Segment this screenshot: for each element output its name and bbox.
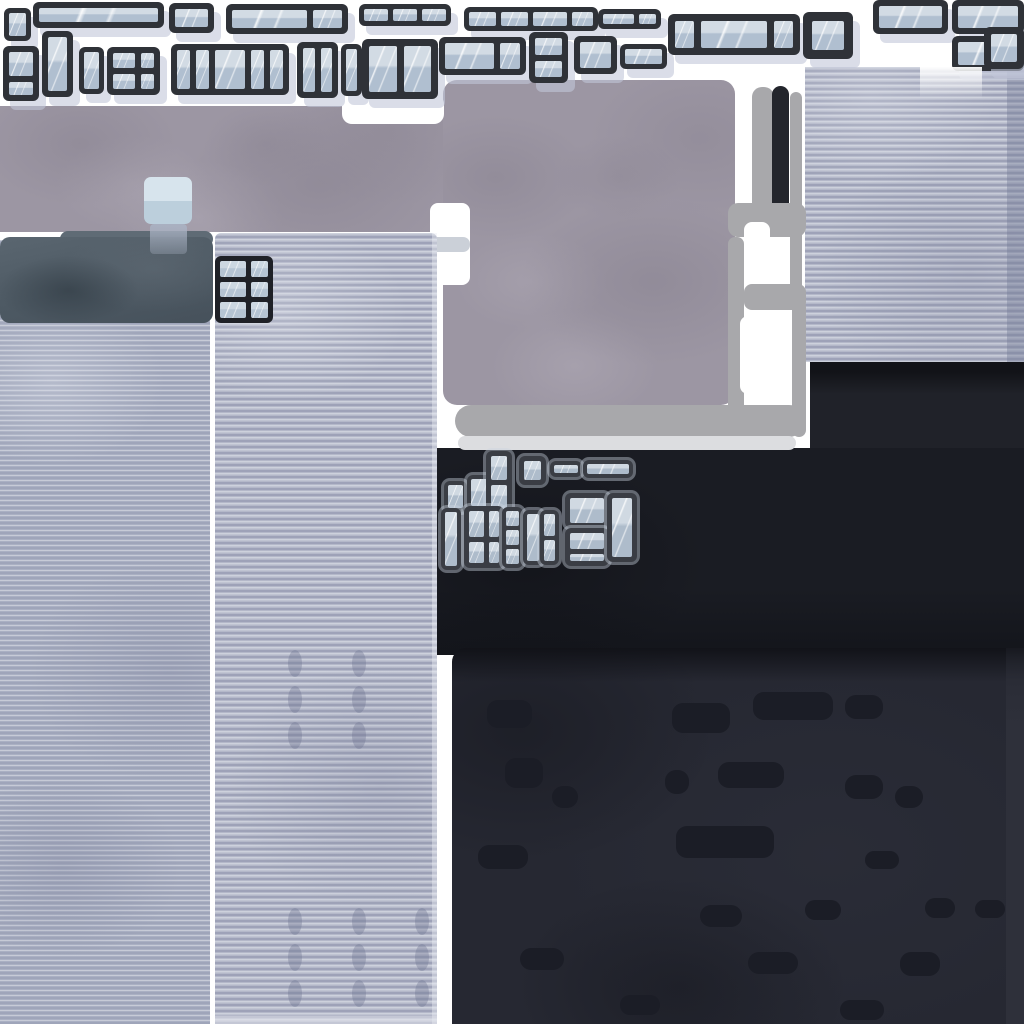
- rivet-stud: [288, 980, 302, 1007]
- window-panes: [9, 13, 26, 36]
- window-panes: [625, 49, 662, 64]
- glass-pane: [303, 48, 315, 92]
- rivet-stud: [288, 686, 302, 713]
- glass-pane: [393, 9, 417, 21]
- window-panes: [469, 12, 593, 26]
- window-sprite-small: [464, 506, 504, 568]
- glass-pane: [603, 14, 634, 24]
- glass-pane: [506, 549, 519, 564]
- rivet-stud: [415, 980, 429, 1007]
- pavement-dash: [505, 758, 543, 788]
- corrugated-panel-right: [805, 67, 1024, 362]
- pavement-dash: [676, 826, 774, 858]
- window-sprite-top: [529, 32, 568, 83]
- rivet-stud: [352, 944, 366, 971]
- window-sprite-top: [169, 3, 214, 33]
- asphalt-dark-upper: [810, 362, 1024, 454]
- glass-pane: [524, 461, 541, 480]
- window-panes: [506, 511, 519, 564]
- glass-pane: [469, 542, 484, 563]
- glass-pane: [812, 21, 844, 50]
- glass-pane: [175, 9, 208, 27]
- glass-pane: [701, 21, 766, 48]
- glass-pane: [220, 261, 246, 277]
- window-sprite-small: [607, 493, 637, 562]
- glass-pane: [232, 10, 307, 28]
- glass-pane: [251, 261, 268, 277]
- glass-pane: [177, 50, 190, 89]
- window-panes: [580, 42, 611, 68]
- rivet-stud: [288, 722, 302, 749]
- pavement-dash: [975, 900, 1005, 918]
- window-panes: [958, 6, 1018, 28]
- glass-pane: [489, 511, 499, 537]
- window-panes: [879, 6, 942, 28]
- window-panes: [369, 46, 431, 92]
- glass-pane: [554, 465, 578, 473]
- glass-pane: [469, 12, 496, 26]
- window-sprite-small: [565, 493, 609, 528]
- glass-pane: [587, 464, 629, 474]
- window-panes: [48, 37, 67, 91]
- window-sprite-top: [359, 4, 451, 26]
- window-sprite-top: [341, 44, 362, 96]
- window-panes: [570, 533, 604, 561]
- window-sprite-top: [171, 44, 289, 95]
- window-sprite-top: [226, 4, 348, 34]
- ac-unit-sprite: [144, 177, 192, 224]
- concrete-wall-band: [0, 106, 443, 232]
- glass-pane: [544, 514, 555, 536]
- window-panes: [220, 261, 268, 318]
- window-sprite-top: [33, 2, 164, 28]
- pavement-dash: [620, 995, 660, 1015]
- glass-pane: [625, 49, 662, 64]
- glass-pane: [220, 282, 246, 298]
- glass-pane: [527, 514, 539, 561]
- glass-pane: [533, 12, 567, 26]
- glass-pane: [469, 511, 484, 537]
- window-sprite-small: [583, 460, 633, 478]
- glass-pane: [39, 8, 158, 22]
- window-sprite-top: [107, 47, 160, 95]
- glass-pane: [535, 61, 562, 77]
- window-panes: [570, 498, 604, 523]
- window-sprite-small: [565, 528, 609, 566]
- glass-pane: [506, 530, 519, 545]
- glass-pane: [500, 43, 520, 69]
- pavement-dash: [805, 900, 841, 920]
- frame-hole: [744, 222, 770, 284]
- glass-pane: [544, 540, 555, 562]
- window-sprite-small: [519, 456, 546, 485]
- window-panes: [113, 53, 154, 89]
- pavement-dash: [865, 851, 899, 869]
- pavement-dash: [487, 700, 532, 728]
- ac-unit-front-face: [144, 201, 192, 224]
- rivet-stud: [352, 686, 366, 713]
- glass-pane: [141, 53, 154, 68]
- glass-pane: [572, 12, 593, 26]
- concrete-wall-square: [443, 80, 735, 405]
- rivet-stud: [352, 722, 366, 749]
- pavement-dash: [552, 786, 578, 808]
- glass-pane: [364, 9, 388, 21]
- window-panes: [448, 485, 463, 508]
- glass-pane: [251, 50, 264, 89]
- pavement-dash: [478, 845, 528, 869]
- window-panes: [587, 464, 629, 474]
- glass-pane: [321, 48, 333, 92]
- glass-pane: [251, 302, 268, 318]
- curb-bar: [455, 405, 805, 437]
- door-bar: [772, 86, 789, 214]
- glass-pane: [879, 6, 942, 28]
- ac-unit-reflection: [150, 224, 187, 254]
- window-sprite-top: [803, 12, 853, 59]
- window-sprite-top: [79, 47, 104, 94]
- rivet-stud: [415, 908, 429, 935]
- glass-pane: [404, 46, 432, 92]
- rivet-stud: [288, 908, 302, 935]
- glass-pane: [774, 21, 793, 48]
- window-panes: [535, 38, 562, 77]
- glass-pane: [991, 34, 1017, 62]
- glass-pane: [369, 46, 397, 92]
- pavement-dash: [748, 952, 798, 974]
- window-sprite-small: [502, 507, 523, 568]
- glass-pane: [84, 52, 99, 89]
- glass-pane: [491, 456, 507, 480]
- glass-pane: [501, 12, 528, 26]
- window-sprite-wall: [215, 256, 273, 323]
- window-panes: [364, 9, 446, 21]
- window-sprite-top: [620, 44, 667, 69]
- glass-pane: [958, 6, 1018, 28]
- pavement-dash: [895, 786, 923, 808]
- glass-pane: [612, 498, 632, 557]
- window-panes: [84, 52, 99, 89]
- window-sprite-top: [3, 46, 39, 101]
- glass-pane: [9, 82, 33, 95]
- window-sprite-top: [297, 42, 338, 98]
- glass-pane: [445, 43, 494, 69]
- window-panes: [177, 50, 283, 89]
- rivet-stud: [352, 980, 366, 1007]
- window-panes: [524, 461, 541, 480]
- window-sprite-small: [550, 461, 582, 477]
- pavement-dash: [925, 898, 955, 918]
- window-panes: [445, 43, 520, 69]
- window-sprite-top: [984, 27, 1024, 69]
- glass-pane: [535, 38, 562, 55]
- glass-pane: [570, 533, 604, 549]
- window-panes: [175, 9, 208, 27]
- pavement-dash: [753, 692, 833, 720]
- rivet-stud: [352, 908, 366, 935]
- glass-pane: [313, 10, 342, 28]
- glass-pane: [9, 13, 26, 36]
- glass-pane: [675, 21, 694, 48]
- pavement-dash: [665, 770, 689, 794]
- pavement-dash: [700, 905, 742, 927]
- glass-pane: [422, 9, 446, 21]
- window-sprite-top: [464, 7, 598, 31]
- window-panes: [445, 512, 457, 566]
- window-panes: [612, 498, 632, 557]
- glass-pane: [220, 302, 246, 318]
- window-panes: [39, 8, 158, 22]
- pavement-dash: [840, 1000, 884, 1020]
- corrugated-siding-left: [0, 240, 210, 1024]
- ac-unit-top-face: [144, 177, 192, 201]
- window-sprite-top: [42, 31, 73, 97]
- window-panes: [9, 52, 33, 95]
- window-panes: [346, 49, 357, 91]
- pipe-bar: [790, 92, 802, 304]
- rivet-stud: [288, 944, 302, 971]
- rivet-stud: [415, 944, 429, 971]
- glass-pane: [448, 485, 463, 508]
- window-panes: [554, 465, 578, 473]
- glass-pane: [113, 53, 135, 68]
- window-sprite-top: [668, 14, 800, 55]
- pavement-dash: [845, 775, 883, 799]
- glass-pane: [346, 49, 357, 91]
- pavement-dash: [845, 695, 883, 719]
- window-panes: [527, 514, 539, 561]
- window-panes: [991, 34, 1017, 62]
- glass-pane: [196, 50, 209, 89]
- rivet-stud: [352, 650, 366, 677]
- glass-pane: [506, 511, 519, 526]
- glass-pane: [251, 282, 268, 298]
- window-sprite-small: [441, 508, 461, 570]
- corrugated-siding-mid: [215, 233, 437, 1024]
- glass-pane: [639, 14, 656, 24]
- glass-pane: [570, 554, 604, 561]
- curb-bar-light: [458, 436, 796, 450]
- glass-pane: [270, 50, 283, 89]
- window-sprite-top: [873, 0, 948, 34]
- window-panes: [603, 14, 656, 24]
- glass-pane: [48, 37, 67, 91]
- window-panes: [675, 21, 793, 48]
- window-panes: [469, 511, 499, 563]
- pavement-dash: [520, 948, 564, 970]
- window-panes: [303, 48, 332, 92]
- pavement-dash: [718, 762, 784, 788]
- window-sprite-top: [598, 9, 661, 29]
- window-panes: [491, 456, 507, 509]
- glass-pane: [580, 42, 611, 68]
- window-panes: [232, 10, 342, 28]
- window-sprite-small: [486, 451, 512, 514]
- window-sprite-top: [574, 36, 617, 74]
- window-sprite-top: [362, 39, 438, 99]
- pavement-dash: [900, 952, 940, 976]
- window-sprite-top: [4, 8, 31, 41]
- rivet-stud: [288, 650, 302, 677]
- glass-pane: [9, 52, 33, 76]
- building-texture-atlas: [0, 0, 1024, 1024]
- glass-pane: [141, 74, 154, 89]
- glass-pane: [445, 512, 457, 566]
- glass-pane: [113, 74, 135, 89]
- glass-pane: [489, 542, 499, 563]
- pavement-dash: [672, 703, 730, 733]
- window-sprite-small: [540, 510, 559, 565]
- window-sprite-top: [439, 37, 526, 75]
- window-panes: [544, 514, 555, 561]
- glass-pane: [215, 50, 246, 89]
- glass-pane: [570, 498, 604, 523]
- frame-hole: [740, 316, 788, 394]
- window-panes: [812, 21, 844, 50]
